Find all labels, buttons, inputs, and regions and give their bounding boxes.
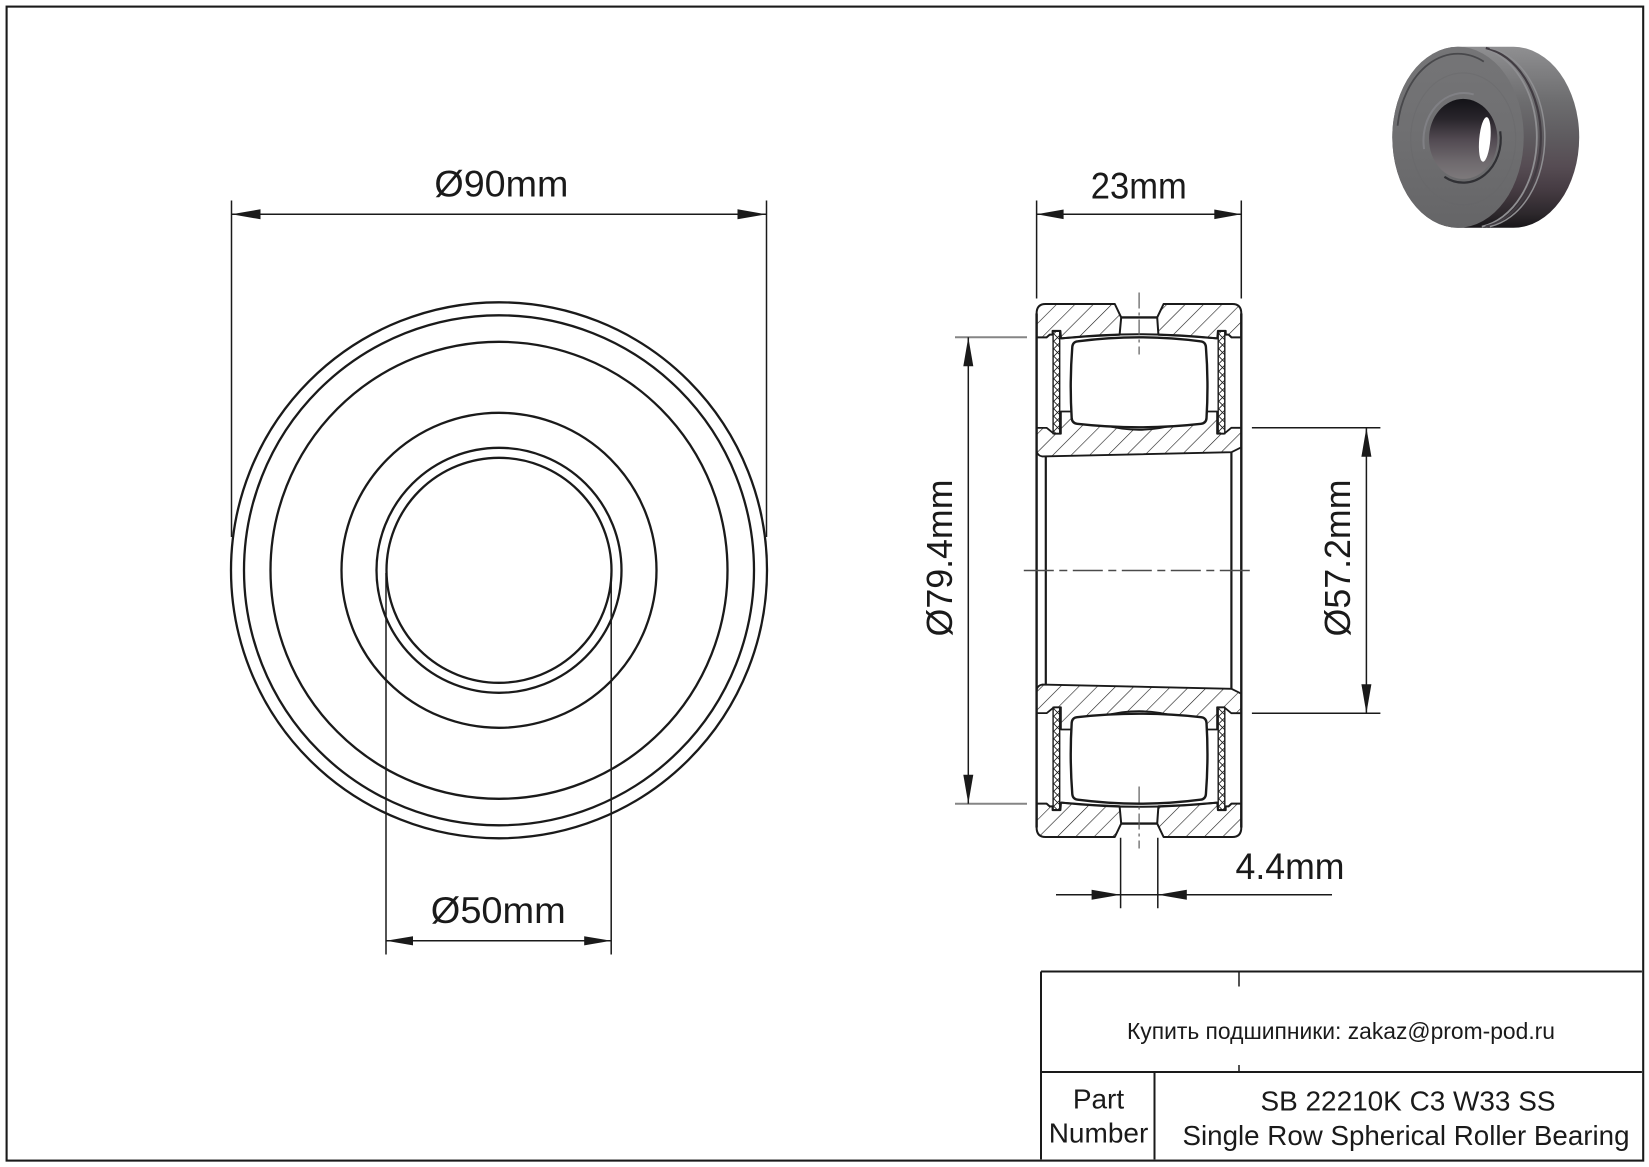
svg-text:Number: Number xyxy=(1049,1118,1149,1149)
svg-text:SB 22210K C3 W33 SS: SB 22210K C3 W33 SS xyxy=(1261,1086,1556,1117)
svg-text:23mm: 23mm xyxy=(1091,165,1187,207)
svg-text:Single Row Spherical Roller Be: Single Row Spherical Roller Bearing xyxy=(1183,1120,1630,1151)
svg-text:Ø57.2mm: Ø57.2mm xyxy=(1317,480,1358,637)
svg-text:4.4mm: 4.4mm xyxy=(1236,845,1345,887)
svg-text:Ø90mm: Ø90mm xyxy=(434,163,568,205)
svg-text:Ø50mm: Ø50mm xyxy=(431,889,566,931)
svg-text:Купить подшипники: zakaz@prom-: Купить подшипники: zakaz@prom-pod.ru xyxy=(1127,1018,1555,1044)
svg-text:Part: Part xyxy=(1073,1084,1125,1115)
svg-text:Ø79.4mm: Ø79.4mm xyxy=(919,480,960,637)
